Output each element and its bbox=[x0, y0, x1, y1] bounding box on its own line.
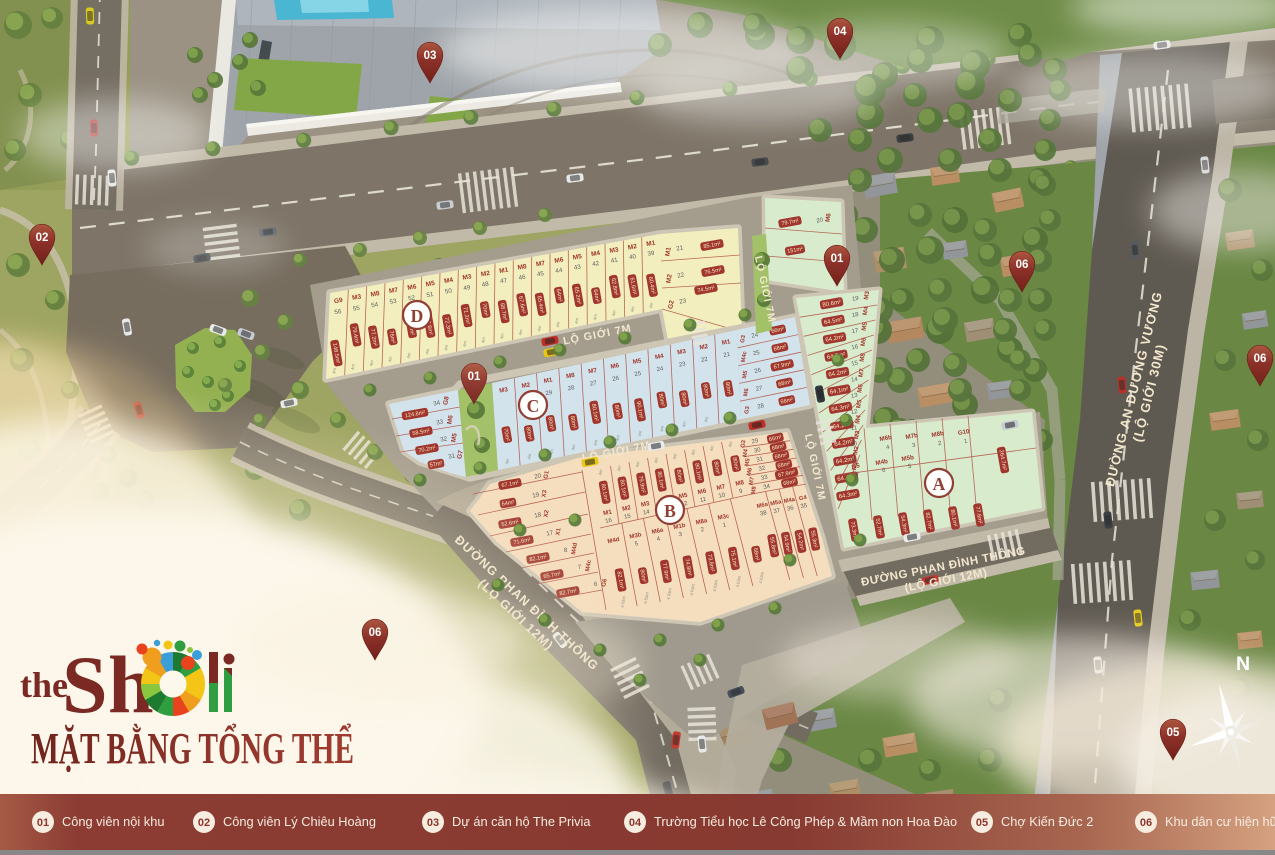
svg-text:N: N bbox=[1236, 653, 1250, 675]
svg-text:Dự án căn hộ The Privia: Dự án căn hộ The Privia bbox=[452, 814, 591, 829]
svg-text:06: 06 bbox=[369, 627, 382, 639]
svg-text:06: 06 bbox=[1016, 259, 1029, 271]
svg-text:Công viên nội khu: Công viên nội khu bbox=[62, 814, 164, 829]
svg-text:MẶT BẰNG TỔNG THỂ: MẶT BẰNG TỔNG THỂ bbox=[31, 722, 354, 773]
svg-text:01: 01 bbox=[37, 817, 49, 829]
svg-text:02: 02 bbox=[36, 232, 49, 244]
svg-text:S: S bbox=[62, 639, 108, 730]
svg-text:Công viên Lý Chiêu Hoàng: Công viên Lý Chiêu Hoàng bbox=[223, 814, 376, 829]
svg-text:05: 05 bbox=[1167, 727, 1180, 739]
svg-text:06: 06 bbox=[1254, 353, 1267, 365]
svg-text:Trường Tiểu học Lê Công Phép &: Trường Tiểu học Lê Công Phép & Mầm non H… bbox=[654, 814, 957, 829]
svg-text:05: 05 bbox=[976, 817, 988, 829]
svg-text:01: 01 bbox=[831, 253, 844, 265]
svg-text:Chợ Kiến Đức 2: Chợ Kiến Đức 2 bbox=[1001, 814, 1093, 829]
svg-text:Khu dân cư hiện hữu: Khu dân cư hiện hữu bbox=[1165, 814, 1275, 829]
svg-text:04: 04 bbox=[629, 817, 642, 829]
svg-text:06: 06 bbox=[1140, 817, 1152, 829]
svg-text:04: 04 bbox=[834, 26, 847, 38]
svg-text:02: 02 bbox=[198, 817, 210, 829]
svg-text:the: the bbox=[20, 665, 68, 705]
svg-text:03: 03 bbox=[424, 50, 437, 62]
svg-text:03: 03 bbox=[427, 817, 439, 829]
